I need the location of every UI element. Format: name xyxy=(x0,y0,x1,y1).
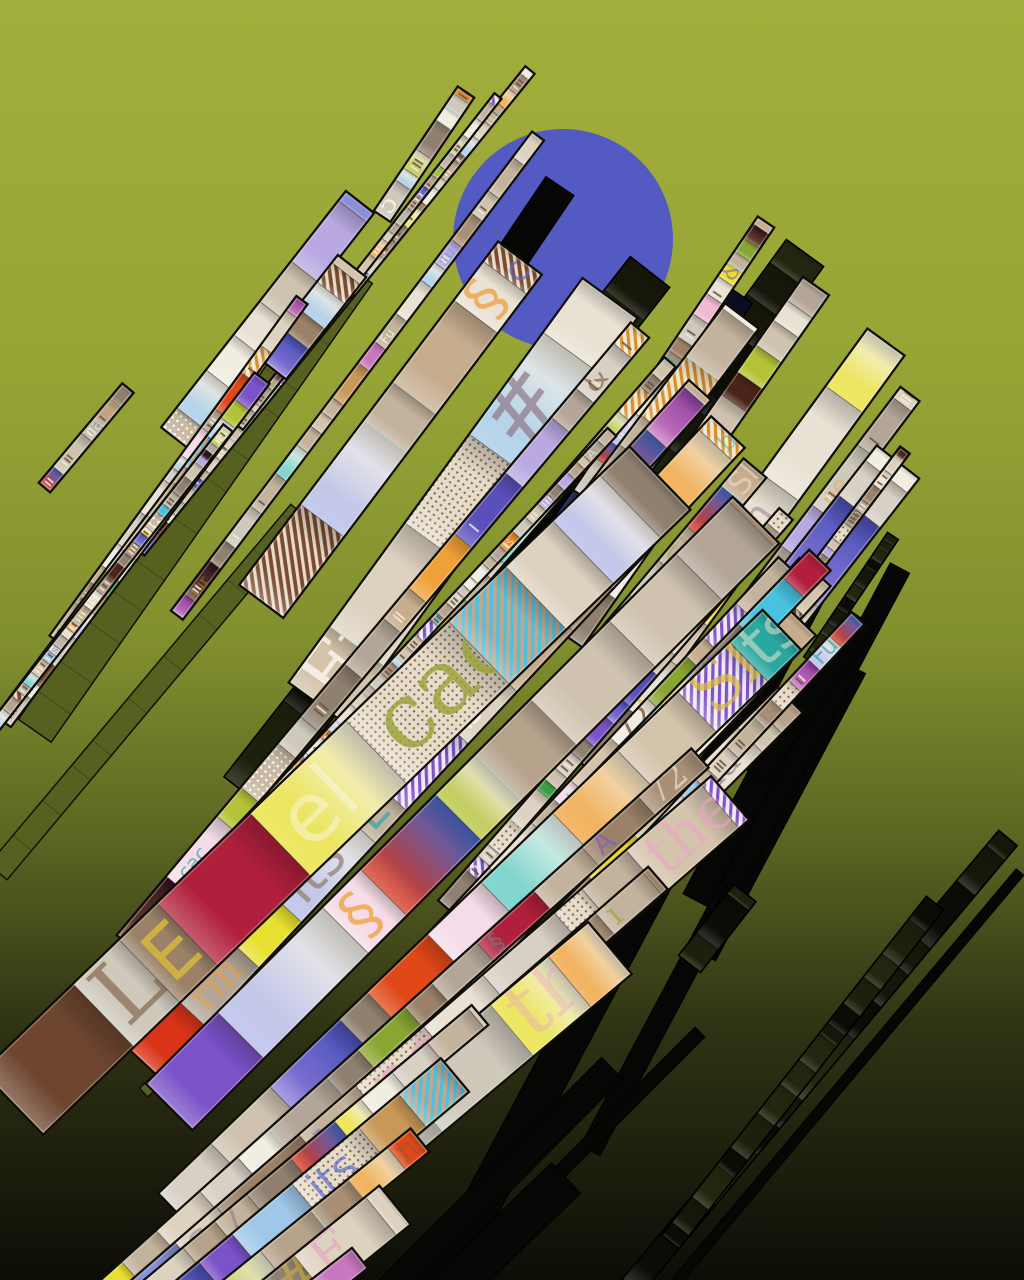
artwork-canvas: m&ißthecmne+britsrm#hE72thesuSl§A5su+72i… xyxy=(0,0,1024,1280)
artwork-stage: m&ißthecmne+britsrm#hE72thesuSl§A5su+72i… xyxy=(0,0,1024,1280)
